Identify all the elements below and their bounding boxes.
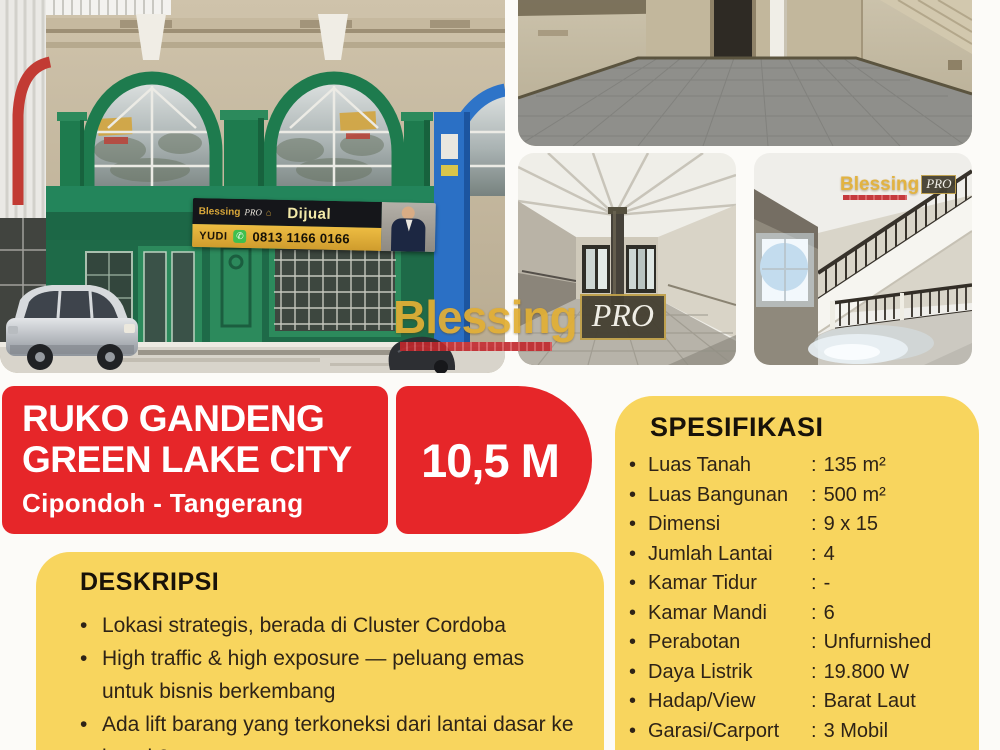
spec-value: 3 Mobil xyxy=(824,721,888,742)
deskripsi-item: • Ada lift barang yang terkoneksi dari l… xyxy=(80,708,576,750)
spesifikasi-row: • Luas Tanah : 135 m² xyxy=(629,455,969,476)
spec-separator: : xyxy=(811,544,817,565)
spec-value: - xyxy=(824,573,831,594)
interior-hall-illustration xyxy=(518,153,736,365)
spec-separator: : xyxy=(811,632,817,653)
spec-value: 500 m² xyxy=(824,485,886,506)
spesifikasi-row: • Dimensi : 9 x 15 xyxy=(629,514,969,535)
bullet-icon: • xyxy=(629,632,648,653)
spec-value: 6 xyxy=(824,603,835,624)
deskripsi-heading: DESKRIPSI xyxy=(80,568,576,597)
banner-brand-name: Blessing xyxy=(199,206,241,218)
spec-label: Daya Listrik xyxy=(648,662,811,683)
spec-label: Dimensi xyxy=(648,514,811,535)
whatsapp-icon: ✆ xyxy=(233,230,246,243)
spec-separator: : xyxy=(811,603,817,624)
bullet-icon: • xyxy=(629,455,648,476)
banner-agent-photo xyxy=(381,202,436,252)
spec-separator: : xyxy=(811,662,817,683)
photo-interior-hall xyxy=(518,153,736,365)
bullet-icon: • xyxy=(629,603,648,624)
spesifikasi-heading: SPESIFIKASI xyxy=(650,412,969,443)
deskripsi-card: DESKRIPSI • Lokasi strategis, berada di … xyxy=(36,552,604,750)
deskripsi-item-text: High traffic & high exposure — peluang e… xyxy=(102,642,576,708)
banner-phone-number: 0813 1166 0166 xyxy=(252,229,350,246)
price-badge: 10,5 M xyxy=(396,386,592,534)
spec-separator: : xyxy=(811,514,817,535)
flyer-canvas: Blessing PRO ⌂ Dijual YUDI ✆ 0813 1166 0… xyxy=(0,0,1000,750)
deskripsi-item: • High traffic & high exposure — peluang… xyxy=(80,642,576,708)
bullet-icon: • xyxy=(629,721,648,742)
banner-status-label: Dijual xyxy=(287,204,331,222)
price-amount: 10,5 M xyxy=(421,433,567,488)
deskripsi-item-text: Lokasi strategis, berada di Cluster Cord… xyxy=(102,609,576,642)
spec-label: Luas Tanah xyxy=(648,455,811,476)
interior-room-illustration xyxy=(518,0,972,146)
building-facade-illustration xyxy=(0,0,505,373)
spec-value: Unfurnished xyxy=(824,632,932,653)
spec-label: Luas Bangunan xyxy=(648,485,811,506)
spesifikasi-card: SPESIFIKASI • Luas Tanah : 135 m² • Luas… xyxy=(615,396,979,750)
bullet-icon: • xyxy=(629,514,648,535)
spec-separator: : xyxy=(811,573,817,594)
spec-label: Hadap/View xyxy=(648,691,811,712)
photo-interior-ground-floor xyxy=(518,0,972,146)
spec-label: Kamar Mandi xyxy=(648,603,811,624)
listing-location: Cipondoh - Tangerang xyxy=(22,489,388,517)
spec-separator: : xyxy=(811,455,817,476)
spec-label: Jumlah Lantai xyxy=(648,544,811,565)
spec-value: 19.800 W xyxy=(824,662,910,683)
banner-brand-suffix: PRO xyxy=(244,207,262,217)
bullet-icon: • xyxy=(80,609,102,642)
bullet-icon: • xyxy=(629,691,648,712)
spec-separator: : xyxy=(811,485,817,506)
bullet-icon: • xyxy=(80,708,102,750)
spec-value: Barat Laut xyxy=(824,691,916,712)
spesifikasi-row: • Hadap/View : Barat Laut xyxy=(629,691,969,712)
deskripsi-item-text: Ada lift barang yang terkoneksi dari lan… xyxy=(102,708,576,750)
bullet-icon: • xyxy=(80,642,102,708)
sale-banner-top-row: Blessing PRO ⌂ Dijual xyxy=(192,198,382,228)
spec-label: Perabotan xyxy=(648,632,811,653)
listing-title-line1: RUKO GANDENG xyxy=(22,398,388,439)
photo-building-exterior: Blessing PRO ⌂ Dijual YUDI ✆ 0813 1166 0… xyxy=(0,0,505,373)
bullet-icon: • xyxy=(629,662,648,683)
spesifikasi-row: • Jumlah Lantai : 4 xyxy=(629,544,969,565)
spec-separator: : xyxy=(811,721,817,742)
banner-agent-name: YUDI xyxy=(199,230,228,243)
spec-value: 9 x 15 xyxy=(824,514,878,535)
spesifikasi-row: • Daya Listrik : 19.800 W xyxy=(629,662,969,683)
house-icon: ⌂ xyxy=(266,208,272,218)
bullet-icon: • xyxy=(629,544,648,565)
spec-label: Kamar Tidur xyxy=(648,573,811,594)
spesifikasi-row: • Kamar Mandi : 6 xyxy=(629,603,969,624)
spesifikasi-row: • Garasi/Carport : 3 Mobil xyxy=(629,721,969,742)
deskripsi-list: • Lokasi strategis, berada di Cluster Co… xyxy=(80,609,576,750)
spec-value: 135 m² xyxy=(824,455,886,476)
spesifikasi-row: • Kamar Tidur : - xyxy=(629,573,969,594)
sale-banner-text: Blessing PRO ⌂ Dijual YUDI ✆ 0813 1166 0… xyxy=(192,198,382,251)
title-card: RUKO GANDENG GREEN LAKE CITY Cipondoh - … xyxy=(2,386,388,534)
spec-label: Garasi/Carport xyxy=(648,721,811,742)
listing-title-line2: GREEN LAKE CITY xyxy=(22,439,388,480)
deskripsi-item: • Lokasi strategis, berada di Cluster Co… xyxy=(80,609,576,642)
spec-separator: : xyxy=(811,691,817,712)
photo-interior-staircase: Blessing PRO xyxy=(754,153,972,365)
sale-banner: Blessing PRO ⌂ Dijual YUDI ✆ 0813 1166 0… xyxy=(192,198,436,252)
spesifikasi-list: • Luas Tanah : 135 m² • Luas Bangunan : … xyxy=(629,455,969,742)
spec-value: 4 xyxy=(824,544,835,565)
bullet-icon: • xyxy=(629,485,648,506)
interior-staircase-illustration xyxy=(754,153,972,365)
spesifikasi-row: • Luas Bangunan : 500 m² xyxy=(629,485,969,506)
bullet-icon: • xyxy=(629,573,648,594)
sale-banner-bottom-row: YUDI ✆ 0813 1166 0166 xyxy=(192,224,381,251)
spesifikasi-row: • Perabotan : Unfurnished xyxy=(629,632,969,653)
